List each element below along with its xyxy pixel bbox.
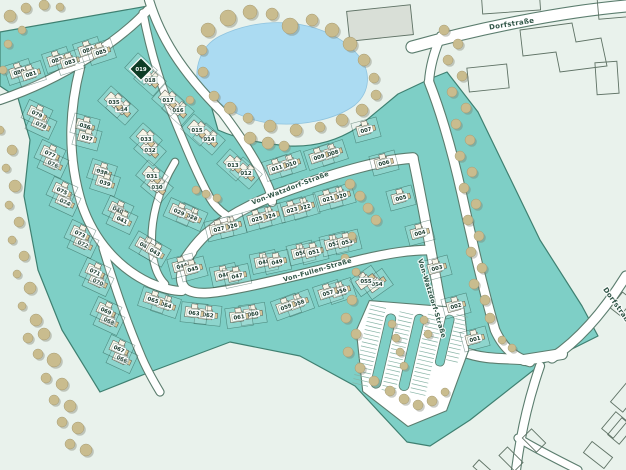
tree-icon <box>30 314 44 328</box>
tree-icon <box>7 145 19 157</box>
tree-icon <box>38 328 52 342</box>
site-plan-map: 0010020030040050060070080090100110120130… <box>0 0 626 470</box>
tree-icon <box>315 122 327 134</box>
lot-number: 063 <box>188 310 200 317</box>
lot-063[interactable]: 063 <box>180 302 208 325</box>
tree-icon <box>453 39 465 51</box>
tree-icon <box>0 126 6 136</box>
tree-icon <box>443 55 455 67</box>
tree-icon <box>65 439 77 451</box>
tree-icon <box>23 333 35 345</box>
lot-number: 019 <box>135 67 147 73</box>
tree-icon <box>290 124 304 138</box>
map-canvas[interactable]: 0010020030040050060070080090100110120130… <box>0 0 626 470</box>
existing-building <box>602 412 626 438</box>
tree-icon <box>371 90 383 102</box>
existing-building <box>473 460 491 470</box>
tree-icon <box>47 353 63 369</box>
tree-icon <box>39 0 51 12</box>
lot-number: 031 <box>146 174 158 180</box>
lot-number: 035 <box>108 100 120 106</box>
house-wing <box>235 308 242 313</box>
tree-icon <box>33 349 45 361</box>
existing-building <box>520 23 607 72</box>
lot-number: 015 <box>191 128 203 134</box>
tree-icon <box>56 3 66 13</box>
tree-icon <box>18 302 28 312</box>
tree-icon <box>336 114 350 128</box>
tree-icon <box>19 251 31 263</box>
tree-icon <box>72 422 86 436</box>
tree-icon <box>8 236 18 246</box>
lot-number: 055 <box>360 279 372 285</box>
existing-building <box>481 0 540 14</box>
house-wing <box>191 304 197 309</box>
existing-building <box>347 5 414 42</box>
tree-icon <box>21 3 33 15</box>
tree-icon <box>24 282 38 296</box>
tree-icon <box>13 270 23 280</box>
existing-building <box>583 441 612 468</box>
house-wing <box>272 253 279 259</box>
tree-icon <box>2 164 12 174</box>
existing-building <box>467 64 509 92</box>
tree-icon <box>220 10 238 28</box>
tree-icon <box>9 180 23 194</box>
tree-icon <box>5 201 15 211</box>
tree-icon <box>201 23 217 39</box>
tree-icon <box>4 10 18 24</box>
tree-icon <box>80 444 94 458</box>
house-wing <box>232 267 239 273</box>
tree-icon <box>369 73 381 85</box>
tree-icon <box>14 217 26 229</box>
tree-icon <box>266 8 280 22</box>
existing-building <box>608 418 626 444</box>
tree-icon <box>41 373 53 385</box>
tree-icon <box>243 5 259 21</box>
tree-icon <box>57 417 69 429</box>
tree-icon <box>64 400 78 414</box>
tree-icon <box>49 395 61 407</box>
lot-number: 017 <box>162 98 174 104</box>
lot-061[interactable]: 061 <box>225 305 254 328</box>
existing-building <box>611 382 626 412</box>
lot-number: 013 <box>227 163 239 169</box>
tree-icon <box>356 104 370 118</box>
lot-number: 033 <box>140 137 152 143</box>
tree-icon <box>56 378 70 392</box>
